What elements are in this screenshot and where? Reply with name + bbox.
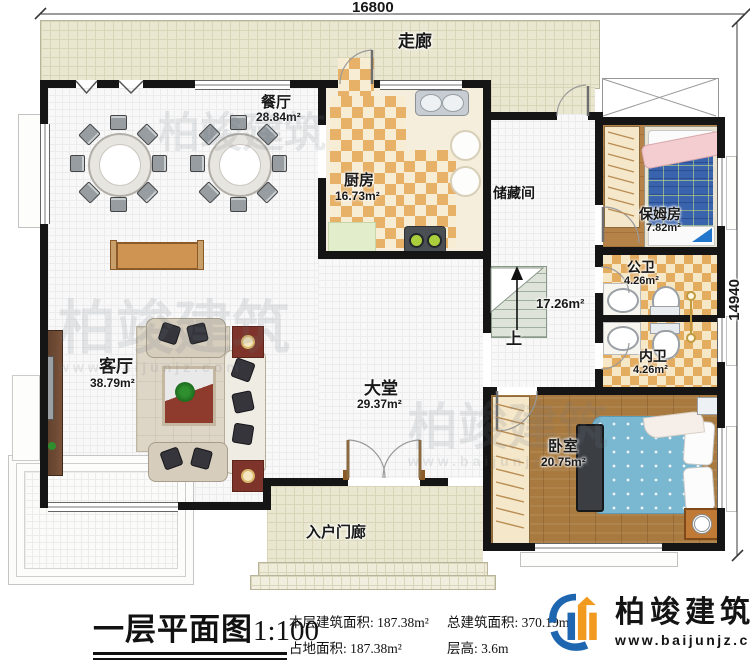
- nanny-label: 保姆房: [639, 207, 681, 222]
- dining-side-window: [40, 124, 50, 224]
- console-bench-end: [110, 240, 117, 270]
- brand-logo-icon: [543, 589, 609, 657]
- wall: [143, 80, 195, 88]
- wall: [717, 117, 725, 158]
- open-patio-box: [602, 78, 719, 119]
- corridor-floor: [40, 20, 600, 89]
- stove-burner: [409, 233, 424, 248]
- bedroom-shelf: [697, 397, 719, 415]
- dining-window: [195, 80, 290, 90]
- brand-name: 柏竣建筑: [615, 598, 750, 628]
- corridor-floor-extension: [491, 87, 595, 114]
- stat-label: 总建筑面积:: [447, 615, 518, 630]
- wall: [318, 178, 326, 257]
- terrace-side-strip: [12, 375, 40, 461]
- door-post: [343, 470, 349, 480]
- living-terrace-window: [48, 502, 178, 512]
- dimension-right: 14940: [727, 265, 743, 335]
- private-bath-area: 4.26m²: [633, 365, 668, 377]
- tv-screen: [47, 356, 54, 420]
- wall: [603, 117, 725, 125]
- wall: [491, 112, 557, 120]
- nanny-window-sill: [726, 156, 737, 230]
- dining-chair: [190, 155, 205, 172]
- cabinet-plant: [48, 442, 56, 450]
- nanny-bed-blue-accent: [692, 228, 712, 242]
- living-label: 客厅: [99, 358, 133, 376]
- brand-url: www.baijunjz.com: [615, 632, 750, 648]
- title-underline-thin: [93, 658, 287, 660]
- wall: [263, 478, 271, 510]
- wall: [483, 395, 491, 551]
- dining-chair: [272, 155, 287, 172]
- stat-value: 187.38m²: [377, 615, 429, 630]
- dining-chair: [230, 115, 247, 130]
- brand-text-block: 柏竣建筑 www.baijunjz.com: [615, 598, 750, 648]
- stat-item: 占地面积: 187.38m²: [289, 637, 439, 657]
- side-table-rosette: [241, 469, 255, 483]
- living-area: 38.79m²: [90, 377, 135, 390]
- stove-burner: [427, 233, 442, 248]
- private-bath-sink: [607, 326, 639, 351]
- wall: [595, 245, 603, 267]
- corridor-label: 走廊: [398, 33, 432, 51]
- kitchen-area: 16.73m²: [335, 190, 380, 203]
- wall: [318, 88, 326, 125]
- stairwell-area: 17.26m²: [536, 297, 584, 311]
- kitchen-label: 厨房: [344, 173, 374, 189]
- console-bench-end: [197, 240, 204, 270]
- wall: [483, 387, 497, 395]
- area-statistics: 本层建筑面积: 187.38m² 总建筑面积: 370.19m² 占地面积: 1…: [289, 611, 573, 657]
- bedroom-area: 20.75m²: [541, 456, 586, 469]
- wall: [483, 88, 491, 333]
- wall: [603, 315, 725, 322]
- storage-label: 储藏间: [493, 186, 535, 201]
- stairs-up-label: 上: [506, 332, 522, 349]
- kitchen-mat: [328, 222, 376, 252]
- bedroom-window-sill: [520, 552, 678, 567]
- wall: [263, 478, 348, 486]
- nanny-area: 7.82m²: [646, 223, 681, 235]
- porch-label: 入户门廊: [306, 525, 366, 541]
- wall: [595, 112, 603, 205]
- wall: [595, 293, 603, 343]
- stat-label: 占地面积:: [289, 641, 347, 656]
- side-table-rosette: [241, 335, 255, 349]
- door-post: [419, 470, 425, 480]
- stat-item: 本层建筑面积: 187.38m²: [289, 611, 439, 631]
- public-bath-label: 公卫: [627, 260, 655, 275]
- dining-chair: [110, 115, 127, 130]
- bed-pillow: [683, 466, 716, 512]
- brand-logo: 柏竣建筑 www.baijunjz.com: [543, 589, 750, 657]
- wall: [717, 226, 725, 318]
- dining-chair: [230, 197, 247, 212]
- plan-title: 一层平面图1:100: [93, 604, 319, 660]
- sink-basin: [420, 94, 442, 112]
- console-bench: [116, 242, 200, 270]
- kitchen-stool: [450, 130, 481, 161]
- wall: [462, 80, 491, 88]
- hall-label: 大堂: [364, 380, 398, 398]
- kitchen-tiles-doorway: [338, 58, 374, 96]
- wall: [603, 247, 725, 255]
- wall: [662, 543, 725, 551]
- wall: [97, 80, 119, 88]
- public-bath-sink: [607, 288, 639, 313]
- sink-basin: [442, 94, 464, 112]
- kitchen-window: [380, 80, 462, 90]
- bedroom-label: 卧室: [548, 439, 578, 455]
- wall: [40, 224, 48, 508]
- porch-floor: [267, 486, 483, 562]
- nanny-wardrobe: [604, 126, 640, 228]
- wall: [318, 251, 491, 259]
- wall: [40, 80, 48, 124]
- sofa-bottom: [148, 442, 228, 482]
- floor-plan-canvas: 走廊 餐厅 28.84m² 厨房 16.73m² 储藏间 保姆房 7.82m² …: [0, 0, 750, 664]
- kitchen-stool: [450, 166, 481, 197]
- wall: [290, 80, 338, 88]
- public-bath-area: 4.26m²: [624, 276, 659, 288]
- dimension-top: 16800: [352, 0, 394, 16]
- nightstand-lamp: [692, 514, 712, 534]
- wall: [717, 362, 725, 428]
- dining-chair: [70, 155, 85, 172]
- dining-area: 28.84m²: [256, 111, 301, 124]
- sofa-cushion: [231, 390, 255, 414]
- bedroom-side-window-sill: [726, 426, 737, 512]
- plan-title-text: 一层平面图: [93, 612, 253, 647]
- dining-chair: [152, 155, 167, 172]
- title-underline-thick: [93, 652, 287, 655]
- private-bath-label: 内卫: [639, 349, 667, 364]
- stat-label: 本层建筑面积:: [289, 615, 374, 630]
- wall: [537, 387, 725, 395]
- dining-chair: [110, 197, 127, 212]
- hall-floor: [318, 259, 483, 478]
- stat-value: 3.6m: [481, 641, 508, 656]
- porch-step-2: [250, 575, 496, 590]
- stat-value: 187.38m²: [350, 641, 402, 656]
- hall-area: 29.37m²: [357, 398, 402, 411]
- dining-label: 餐厅: [261, 95, 291, 111]
- stat-label: 层高:: [447, 641, 478, 656]
- potted-plant: [175, 382, 195, 402]
- wall: [178, 502, 270, 510]
- wall: [491, 543, 535, 551]
- bedroom-wardrobe: [492, 396, 530, 544]
- sofa-cushion: [232, 423, 255, 446]
